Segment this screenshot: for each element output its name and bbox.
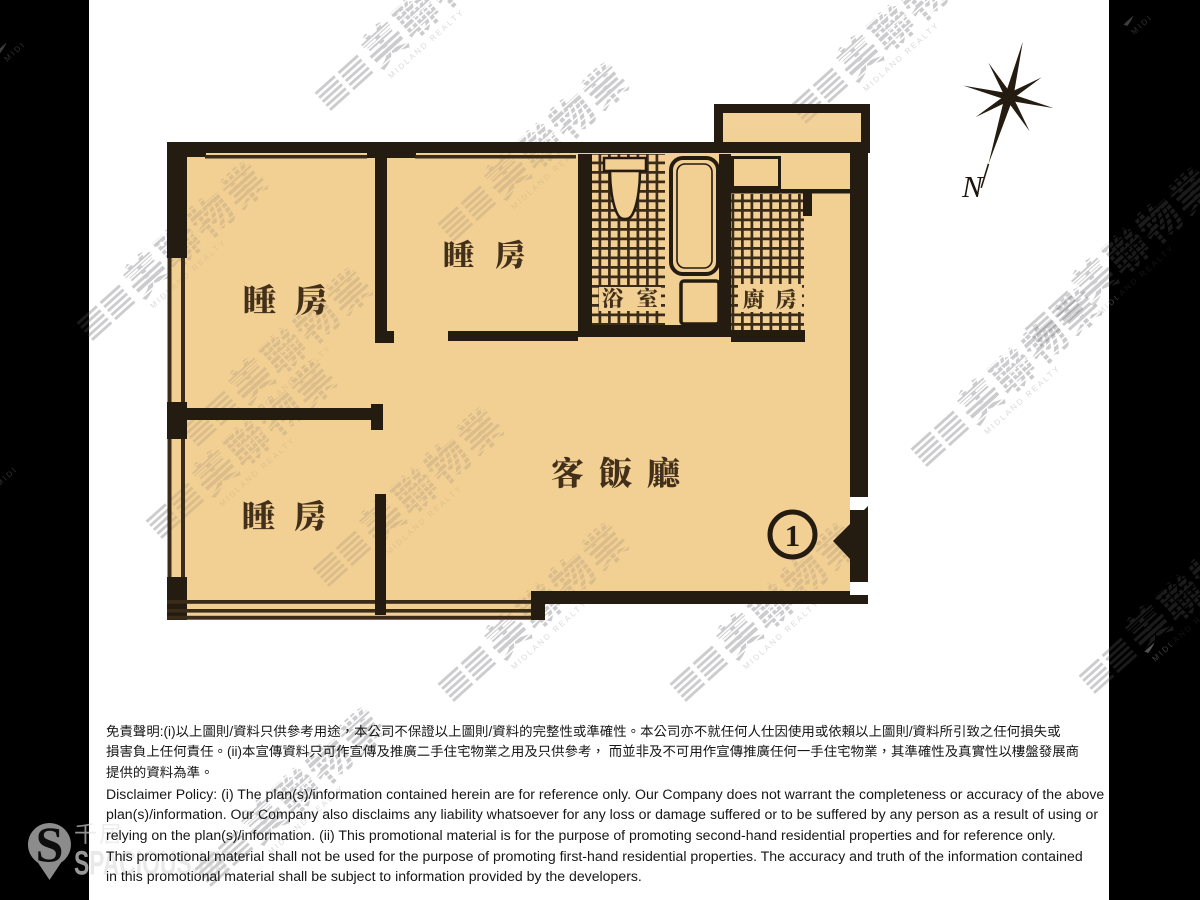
svg-text:浴室: 浴室 — [602, 282, 671, 313]
svg-text:睡房: 睡房 — [243, 275, 347, 322]
svg-text:1: 1 — [785, 518, 801, 553]
svg-text:N: N — [961, 169, 985, 204]
svg-text:S: S — [36, 816, 64, 872]
svg-text:客飯廳: 客飯廳 — [551, 448, 695, 495]
svg-text:睡房: 睡房 — [242, 491, 346, 538]
svg-text:廚房: 廚房 — [743, 283, 808, 314]
svg-text:睡房: 睡房 — [443, 230, 547, 275]
